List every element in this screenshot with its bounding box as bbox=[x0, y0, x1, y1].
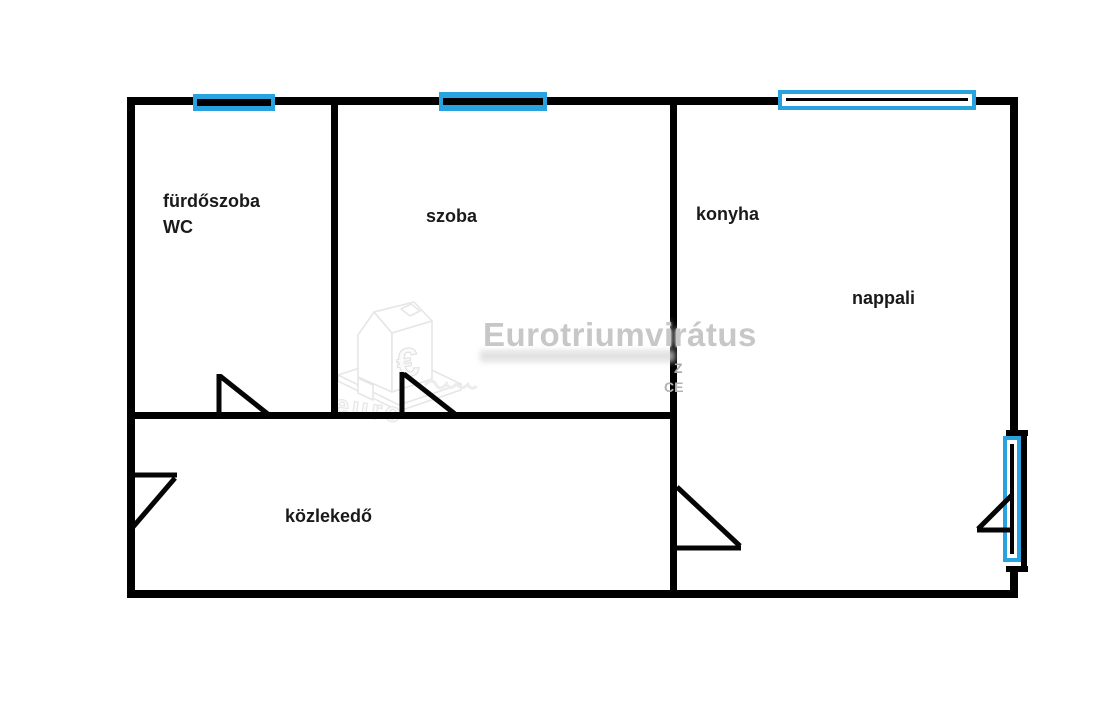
bathroom-door bbox=[219, 374, 269, 417]
room-label-hallway: közlekedő bbox=[285, 506, 372, 527]
doors-layer bbox=[0, 0, 1118, 718]
room-label-wc: WC bbox=[163, 217, 193, 238]
living-room-door bbox=[673, 487, 741, 548]
entrance-door bbox=[130, 475, 177, 527]
room-label-living-room: nappali bbox=[852, 288, 915, 309]
floor-plan: € euro bbox=[0, 0, 1118, 718]
balcony-door-swing bbox=[977, 495, 1012, 530]
room-label-kitchen: konyha bbox=[696, 204, 759, 225]
room-label-bathroom: fürdőszoba bbox=[163, 191, 260, 212]
bedroom-door bbox=[402, 372, 455, 416]
room-label-bedroom: szoba bbox=[426, 206, 477, 227]
